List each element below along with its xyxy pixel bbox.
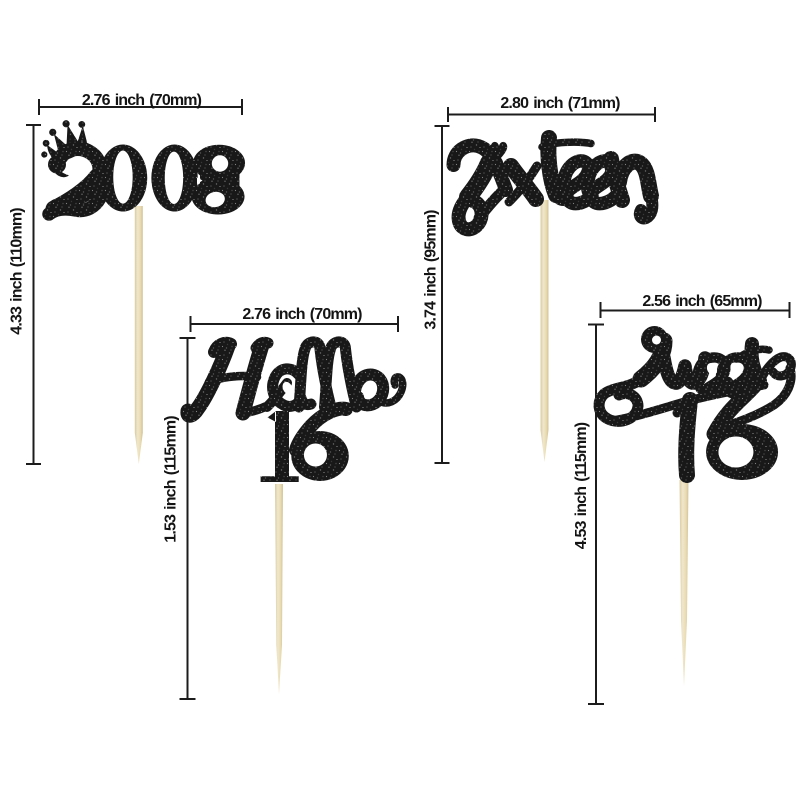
svg-text:3.74 inch (95mm): 3.74 inch (95mm) xyxy=(423,210,440,330)
svg-text:2.76 inch (70mm): 2.76 inch (70mm) xyxy=(82,92,202,109)
svg-text:2.76 inch (70mm): 2.76 inch (70mm) xyxy=(242,306,362,323)
svg-text:4.53 inch (115mm): 4.53 inch (115mm) xyxy=(573,422,590,549)
svg-text:2.80 inch (71mm): 2.80 inch (71mm) xyxy=(500,95,620,112)
svg-text:1.53 inch (115mm): 1.53 inch (115mm) xyxy=(163,416,180,543)
svg-text:4.33 inch (110mm): 4.33 inch (110mm) xyxy=(9,208,26,335)
svg-text:2.56 inch (65mm): 2.56 inch (65mm) xyxy=(642,293,762,310)
